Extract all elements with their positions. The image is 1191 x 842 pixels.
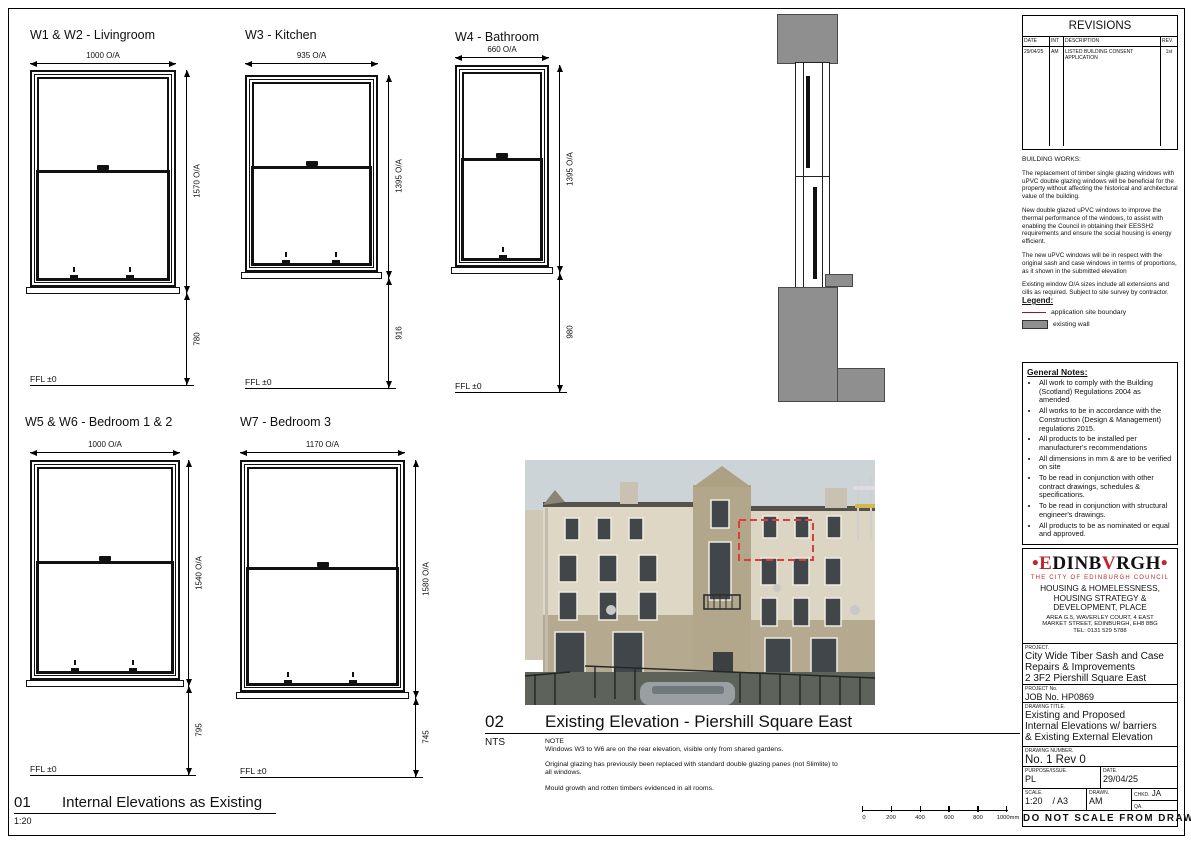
dimension-line: [186, 293, 187, 385]
general-notes: General Notes: All work to comply with t…: [1022, 362, 1178, 545]
sill-section: [825, 274, 853, 287]
legend: Legend: application site boundary existi…: [1022, 296, 1178, 333]
revisions-col-description: DESCRIPTION LISTED BUILDING CONSENT APPL…: [1064, 37, 1161, 146]
lower-sash: [251, 166, 372, 266]
window-frame: [245, 75, 378, 272]
dimension-height-label: 1580 O/A: [422, 562, 431, 596]
scale-tick-label: 1000mm: [997, 815, 1020, 821]
department-name: HOUSING & HOMELESSNESS,HOUSING STRATEGY …: [1025, 584, 1175, 613]
ffl-label: FFL ±0: [245, 377, 272, 387]
do-not-scale-text: DO NOT SCALE FROM DRAWING: [1023, 811, 1177, 824]
dimension-width-label: 1000 O/A: [30, 440, 180, 449]
ffl-line: [245, 388, 396, 389]
existing-wall-swatch: [1022, 320, 1048, 329]
window-frame: [240, 460, 405, 692]
window-elevation-w1-w2: W1 & W2 - Livingroom 1000 O/A 1570 O/A 7…: [30, 28, 230, 394]
do-not-scale-box: DO NOT SCALE FROM DRAWING: [1022, 810, 1178, 827]
dimension-line: [245, 63, 378, 64]
caption-scale: NTS: [485, 737, 505, 748]
building-works-paragraph: The new uPVC windows will be in respect …: [1022, 252, 1178, 275]
note-paragraph: Original glazing has previously been rep…: [545, 761, 845, 777]
sash-lift: [70, 267, 78, 278]
caption-title: Existing Elevation - Piershill Square Ea…: [545, 712, 852, 732]
revisions-title: REVISIONS: [1023, 16, 1177, 37]
wall-step-section: [837, 368, 885, 402]
drawing-title-label: DRAWING TITLE.: [1023, 703, 1177, 710]
sash-catch: [306, 161, 318, 166]
project-label: PROJECT.: [1023, 644, 1177, 651]
sash-catch: [99, 556, 111, 561]
dimension-height-label: 1570 O/A: [193, 164, 202, 198]
job-number-label: PROJECT No.: [1023, 685, 1177, 692]
date-cell: DATE. 29/04/25: [1101, 767, 1177, 788]
scale-value: 1:20 / A3: [1023, 796, 1086, 806]
sash-lift: [129, 660, 137, 671]
dimension-width-label: 1170 O/A: [240, 440, 405, 449]
dimension-line: [30, 63, 176, 64]
sash-catch: [496, 153, 508, 158]
revision-description: LISTED BUILDING CONSENT APPLICATION: [1064, 47, 1160, 63]
scale-bar: 0 200 400 600 800 1000mm: [862, 806, 1008, 826]
dimension-sill-label: 780: [193, 332, 202, 345]
dimension-sill-label: 795: [195, 723, 204, 736]
window-frame: [30, 460, 180, 680]
dimension-line: [388, 278, 389, 388]
scale-tick-label: 800: [973, 815, 983, 821]
frame-section: [795, 62, 830, 290]
edinburgh-council-logo: •EDINBVRGH•: [1025, 553, 1175, 575]
legend-heading: Legend:: [1022, 296, 1178, 305]
job-number-box: PROJECT No. JOB No. HP0869: [1022, 684, 1178, 703]
scale-cell: SCALE. 1:20 / A3: [1023, 789, 1087, 810]
revisions-col-int: INT AM: [1050, 37, 1064, 146]
caption-underline: [485, 733, 1020, 734]
window-casing: [244, 464, 401, 688]
ffl-line: [30, 775, 196, 776]
building-works-paragraph: Existing window O/A sizes include all ex…: [1022, 281, 1178, 297]
caption-underline: [14, 813, 276, 814]
window-casing: [459, 69, 545, 263]
sash-lift: [282, 252, 290, 263]
window-frame: [455, 65, 549, 267]
window-title: W4 - Bathroom: [455, 30, 539, 44]
caption-title: Internal Elevations as Existing: [62, 794, 262, 811]
purpose-value: PL: [1023, 774, 1100, 784]
sash-lift: [332, 252, 340, 263]
drawn-cell: DRAWN. AM: [1087, 789, 1132, 810]
dimension-line: [415, 460, 416, 698]
window-title: W5 & W6 - Bedroom 1 & 2: [25, 415, 172, 429]
general-note: All products to be as nominated or equal…: [1039, 522, 1173, 539]
revisions-col-date: DATE 29/04/25: [1023, 37, 1050, 146]
sash-lift: [284, 672, 292, 683]
ffl-label: FFL ±0: [30, 764, 57, 774]
window-sill: [241, 272, 382, 279]
building-works-paragraph: New double glazed uPVC windows to improv…: [1022, 207, 1178, 246]
dimension-line: [240, 452, 405, 453]
caption-number: 02: [485, 712, 504, 732]
ffl-line: [240, 777, 423, 778]
lower-glazing-section: [813, 187, 817, 279]
revision-number: 1st: [1161, 47, 1177, 57]
sash-catch: [97, 165, 109, 170]
dimension-width-label: 1000 O/A: [30, 51, 176, 60]
window-casing: [34, 74, 172, 283]
revisions-header: DESCRIPTION: [1064, 37, 1160, 47]
window-sill: [236, 692, 409, 699]
dimension-width-label: 660 O/A: [455, 45, 549, 54]
ffl-label: FFL ±0: [240, 766, 267, 776]
window-section-detail: [765, 8, 887, 410]
project-name: City Wide Tiber Sash and CaseRepairs & I…: [1023, 651, 1177, 684]
scale-label: SCALE.: [1023, 789, 1086, 796]
elevation-notes: NOTE Windows W3 to W6 are on the rear el…: [545, 738, 845, 800]
dimension-line: [186, 70, 187, 293]
dimension-sill-label: 980: [566, 325, 575, 338]
date-label: DATE.: [1101, 767, 1177, 774]
window-sill: [451, 267, 553, 274]
date-value: 29/04/25: [1101, 774, 1177, 784]
legend-label: application site boundary: [1051, 309, 1126, 316]
revisions-table: REVISIONS DATE 29/04/25 INT AM DESCRIPTI…: [1022, 15, 1178, 150]
sash-catch: [317, 562, 329, 567]
sash-lift: [71, 660, 79, 671]
drawing-sheet: W1 & W2 - Livingroom 1000 O/A 1570 O/A 7…: [0, 0, 1191, 842]
wall-head-section: [777, 14, 838, 64]
dimension-line: [455, 57, 549, 58]
legend-item-existing-wall: existing wall: [1022, 320, 1178, 329]
general-note: All works to be in accordance with the C…: [1039, 407, 1173, 433]
purpose-cell: PURPOSE/ISSUE. PL: [1023, 767, 1101, 788]
scale-tick-label: 0: [862, 815, 865, 821]
note-label: NOTE: [545, 738, 845, 745]
note-paragraph: Mould growth and rotten timbers evidence…: [545, 785, 845, 793]
drawing-number: No. 1 Rev 0: [1023, 754, 1177, 766]
dimension-line: [188, 686, 189, 775]
drawing-number-label: DRAWING NUMBER.: [1023, 747, 1177, 754]
dimension-sill-label: 745: [422, 730, 431, 743]
lower-sash: [36, 170, 170, 281]
legend-label: existing wall: [1053, 321, 1090, 328]
lower-sash: [246, 567, 399, 686]
upper-sash: [462, 72, 542, 160]
window-casing: [249, 79, 374, 268]
revisions-header: DATE: [1023, 37, 1049, 47]
dimension-line: [559, 65, 560, 273]
revision-date: 29/04/25: [1023, 47, 1049, 57]
wall-below-section: [778, 287, 838, 402]
building-works-heading: BUILDING WORKS:: [1022, 156, 1178, 164]
dimension-line: [30, 452, 180, 453]
scale-tick-label: 200: [886, 815, 896, 821]
dimension-line: [559, 273, 560, 392]
drawing-title: Existing and ProposedInternal Elevations…: [1023, 710, 1177, 743]
lower-sash: [36, 561, 174, 674]
logo-tagline: THE CITY OF EDINBURGH COUNCIL: [1025, 575, 1175, 581]
dimension-line: [188, 460, 189, 686]
legend-item-boundary: application site boundary: [1022, 309, 1178, 316]
window-title: W3 - Kitchen: [245, 28, 317, 42]
checked-cell: CHKD. JA QA.: [1132, 789, 1177, 810]
note-paragraph: Windows W3 to W6 are on the rear elevati…: [545, 746, 845, 754]
drawn-label: DRAWN.: [1087, 789, 1131, 796]
scale-drawn-row: SCALE. 1:20 / A3 DRAWN. AM CHKD. JA QA.: [1022, 788, 1178, 811]
scale-tick-label: 400: [915, 815, 925, 821]
ffl-label: FFL ±0: [455, 381, 482, 391]
revisions-col-rev: REV. 1st: [1161, 37, 1177, 146]
general-note: All dimensions in mm & are to be verifie…: [1039, 455, 1173, 472]
upper-sash: [37, 77, 169, 172]
window-elevation-w7: W7 - Bedroom 3 1170 O/A 1580 O/A 745 FFL…: [240, 415, 455, 787]
window-title: W7 - Bedroom 3: [240, 415, 331, 429]
window-frame: [30, 70, 176, 287]
sash-lift: [499, 247, 507, 258]
drawing-title-box: DRAWING TITLE. Existing and ProposedInte…: [1022, 702, 1178, 747]
caption-number: 01: [14, 794, 31, 811]
window-elevation-w3: W3 - Kitchen 935 O/A 1395 O/A 916 FFL ±0: [245, 28, 435, 394]
office-address: AREA G.5, WAVERLEY COURT, 4 EASTMARKET S…: [1025, 615, 1175, 635]
caption-scale: 1:20: [14, 816, 32, 826]
window-title: W1 & W2 - Livingroom: [30, 28, 155, 42]
drawn-value: AM: [1087, 796, 1131, 806]
general-note: To be read in conjunction with other con…: [1039, 474, 1173, 500]
window-sill: [26, 680, 184, 687]
project-box: PROJECT. City Wide Tiber Sash and CaseRe…: [1022, 643, 1178, 685]
dimension-line: [388, 75, 389, 278]
general-notes-list: All work to comply with the Building (Sc…: [1027, 379, 1173, 539]
building-works-notes: BUILDING WORKS: The replacement of timbe…: [1022, 156, 1178, 303]
window-casing: [34, 464, 176, 676]
dimension-sill-label: 916: [395, 326, 404, 339]
window-sill: [26, 287, 180, 294]
upper-glazing-section: [806, 76, 810, 168]
scale-tick-label: 600: [944, 815, 954, 821]
purpose-date-row: PURPOSE/ISSUE. PL DATE. 29/04/25: [1022, 766, 1178, 789]
sash-lift: [126, 267, 134, 278]
ffl-line: [30, 385, 194, 386]
ffl-label: FFL ±0: [30, 374, 57, 384]
office-block: •EDINBVRGH• THE CITY OF EDINBURGH COUNCI…: [1022, 548, 1178, 644]
dimension-line: [415, 698, 416, 777]
building-works-paragraph: The replacement of timber single glazing…: [1022, 170, 1178, 201]
checked-value: CHKD. JA: [1132, 789, 1177, 801]
general-note: All work to comply with the Building (Sc…: [1039, 379, 1173, 405]
dimension-height-label: 1395 O/A: [395, 159, 404, 193]
general-note: All products to be installed per manufac…: [1039, 435, 1173, 452]
dimension-width-label: 935 O/A: [245, 51, 378, 60]
upper-sash: [37, 467, 173, 563]
sash-lift: [349, 672, 357, 683]
dimension-height-label: 1395 O/A: [566, 152, 575, 186]
upper-sash: [252, 82, 371, 168]
general-notes-heading: General Notes:: [1027, 367, 1173, 377]
lower-sash: [461, 158, 543, 261]
scale-bar-line: [862, 810, 1008, 811]
purpose-label: PURPOSE/ISSUE.: [1023, 767, 1100, 774]
upper-sash: [247, 467, 398, 569]
ffl-line: [455, 392, 567, 393]
dimension-height-label: 1540 O/A: [195, 556, 204, 590]
general-note: To be read in conjunction with structura…: [1039, 502, 1173, 519]
window-elevation-w5-w6: W5 & W6 - Bedroom 1 & 2 1000 O/A 1540 O/…: [25, 415, 230, 785]
job-number: JOB No. HP0869: [1023, 692, 1177, 702]
site-photo: [525, 460, 875, 705]
boundary-line-swatch: [1022, 312, 1046, 313]
window-elevation-w4: W4 - Bathroom 660 O/A 1395 O/A 980 FFL ±…: [455, 30, 605, 398]
site-photo-image: [525, 460, 875, 705]
revision-initials: AM: [1050, 47, 1063, 57]
drawing-number-box: DRAWING NUMBER. No. 1 Rev 0: [1022, 746, 1178, 767]
revisions-header: REV.: [1161, 37, 1177, 47]
revisions-header: INT: [1050, 37, 1063, 47]
